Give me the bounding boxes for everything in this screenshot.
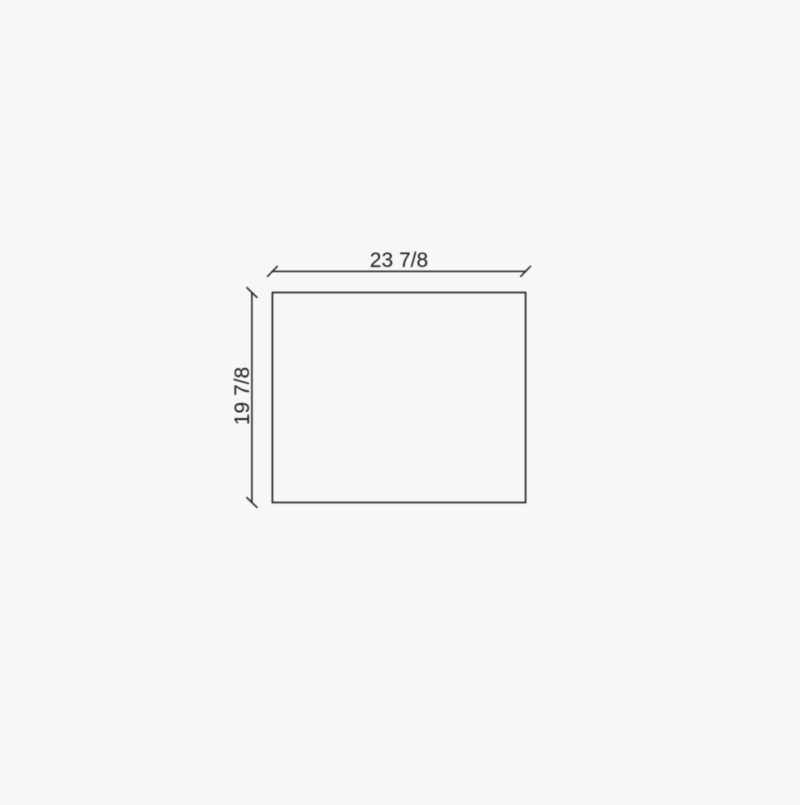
- svg-text:19 7/8: 19 7/8: [231, 367, 254, 425]
- svg-text:23 7/8: 23 7/8: [370, 249, 428, 272]
